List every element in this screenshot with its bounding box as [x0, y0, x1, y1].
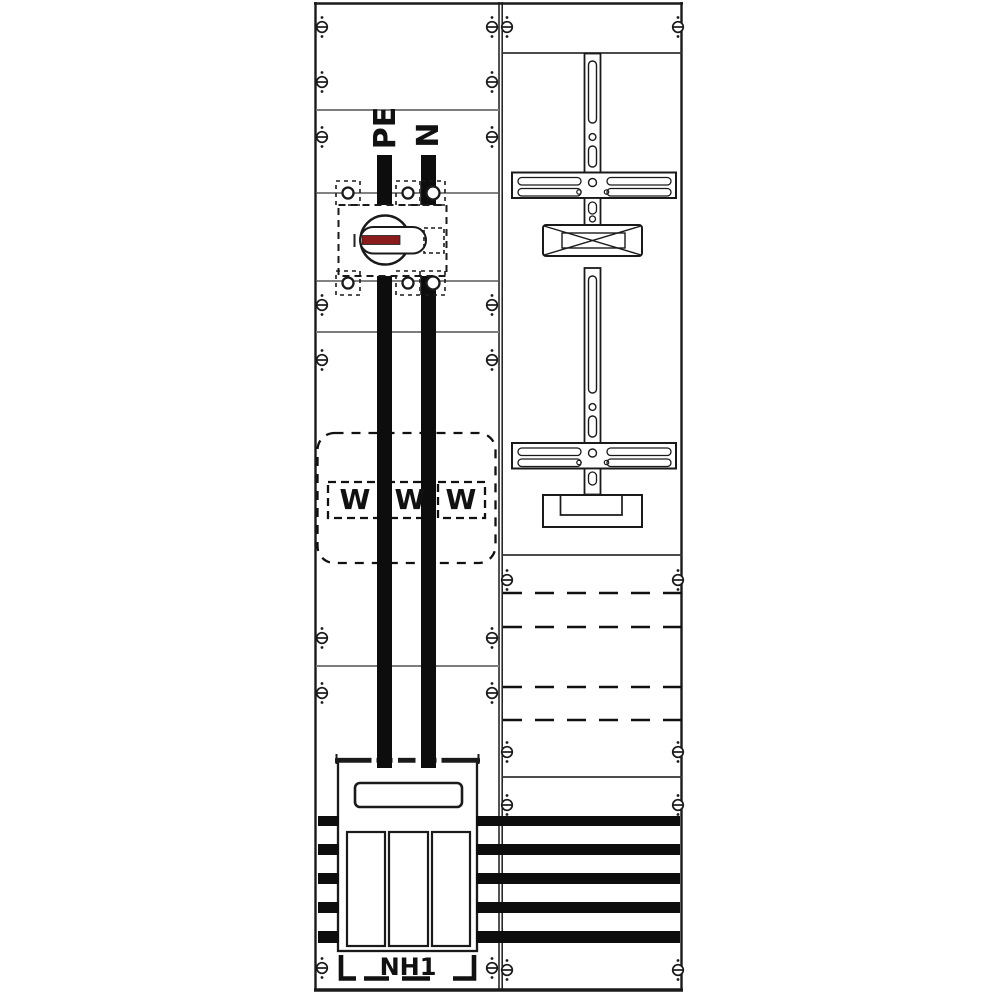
terminal-clamp-icon — [427, 277, 440, 290]
terminal-clamp-icon — [403, 278, 414, 289]
main-switch — [339, 205, 447, 276]
rail-end-bracket — [543, 495, 642, 527]
screw-icon — [502, 959, 513, 981]
screw-icon — [317, 294, 328, 316]
screw-icon — [502, 569, 513, 591]
screw-icon — [502, 794, 513, 816]
screw-icon — [317, 627, 328, 649]
screw-icon — [502, 16, 513, 38]
screw-icon — [487, 71, 498, 93]
screw-icon — [317, 957, 328, 979]
screw-icon — [502, 741, 513, 763]
rail-crossbar-icon — [512, 173, 676, 199]
meter-label-3: W — [439, 483, 483, 517]
distribution-busbar — [476, 902, 680, 913]
mounting-rail-icon — [585, 268, 601, 443]
screw-icon — [317, 16, 328, 38]
distribution-busbar — [476, 931, 680, 943]
screw-icon — [487, 627, 498, 649]
dashed-section-line — [503, 593, 682, 720]
mounting-rail-icon — [585, 469, 601, 495]
screw-icon — [487, 957, 498, 979]
panel-linework — [0, 0, 1000, 1000]
screw-icon — [487, 16, 498, 38]
rail-crossbar-icon — [512, 443, 676, 469]
nameplate-window — [355, 783, 462, 807]
nh1-fuse-details — [347, 783, 470, 946]
n-busbar-label: N — [413, 100, 445, 170]
right-panel-hardware — [512, 54, 676, 528]
busbar-support-icon — [543, 225, 642, 256]
fuse-cartridge — [389, 832, 428, 946]
distribution-busbar — [476, 816, 680, 826]
meter-label-1: W — [333, 483, 377, 517]
screw-icon — [317, 349, 328, 371]
fuse-cartridge — [432, 832, 470, 946]
screw-icon — [487, 126, 498, 148]
distribution-busbar-stub — [318, 931, 339, 943]
screw-icon — [317, 126, 328, 148]
distribution-busbar — [476, 844, 680, 855]
distribution-busbar — [476, 873, 680, 884]
screw-icon — [487, 294, 498, 316]
electrical-panel-drawing: PE N W W W NH1 — [0, 0, 1000, 1000]
fuse-cartridge — [347, 832, 385, 946]
distribution-busbar-stub — [318, 873, 339, 884]
distribution-busbar-stub — [318, 844, 339, 855]
terminal-clamp-icon — [403, 188, 414, 199]
switch-handle-grip — [362, 236, 400, 245]
terminal-clamp-icon — [427, 187, 440, 200]
mounting-rail-icon — [585, 54, 601, 173]
fuse-unit-label: NH1 — [366, 952, 450, 982]
screw-icon — [317, 71, 328, 93]
meter-label-2: W — [388, 483, 432, 517]
screw-icon — [487, 682, 498, 704]
terminal-clamp-icon — [343, 188, 354, 199]
screw-icon — [317, 682, 328, 704]
terminal-clamp-icon — [343, 278, 354, 289]
distribution-busbar-stub — [318, 816, 339, 826]
pe-busbar-label: PE — [370, 93, 402, 163]
screw-icon — [487, 349, 498, 371]
distribution-busbar-stub — [318, 902, 339, 913]
mounting-rail-icon — [585, 198, 601, 225]
